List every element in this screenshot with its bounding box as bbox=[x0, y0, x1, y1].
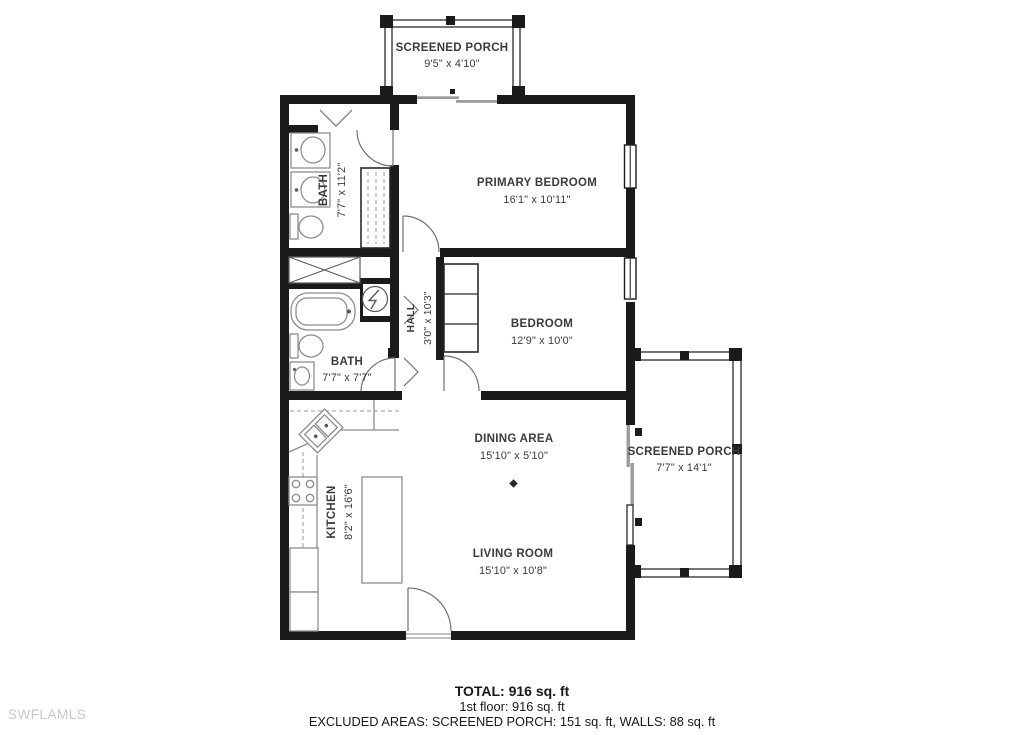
refrigerator-icon bbox=[290, 548, 318, 592]
kitchen-sink-icon bbox=[299, 409, 343, 453]
hall: HALL 3'0" x 10'3" bbox=[404, 291, 434, 386]
water-heater-icon bbox=[363, 287, 388, 312]
porch-post bbox=[628, 565, 641, 578]
room-label: HALL bbox=[406, 303, 417, 332]
floor-plan-image: SCREENED PORCH 9'5" x 4'10" bbox=[0, 0, 1024, 735]
room-dims: 16'1" x 10'11" bbox=[503, 194, 570, 206]
toilet-icon bbox=[290, 214, 298, 239]
patio-slider bbox=[631, 463, 635, 505]
room-dims: 15'10" x 5'10" bbox=[480, 450, 548, 462]
room-dims: 8'2" x 16'6" bbox=[343, 484, 355, 540]
room-label: BATH bbox=[318, 174, 330, 206]
room-dims: 7'7" x 14'1" bbox=[656, 462, 712, 474]
shower bbox=[289, 257, 360, 283]
room-dims: 12'9" x 10'0" bbox=[511, 335, 573, 347]
first-floor-area: 1st floor: 916 sq. ft bbox=[0, 699, 1024, 714]
room-label: BEDROOM bbox=[511, 318, 573, 330]
kitchen-island bbox=[362, 477, 402, 583]
porch-post bbox=[680, 568, 689, 577]
dimension-marker bbox=[450, 89, 455, 94]
area-summary: TOTAL: 916 sq. ft 1st floor: 916 sq. ft … bbox=[0, 683, 1024, 729]
porch-post bbox=[680, 351, 689, 360]
porch-post bbox=[729, 565, 742, 578]
room-dims: 3'0" x 10'3" bbox=[423, 291, 434, 345]
doorway-chevron bbox=[320, 110, 352, 126]
room-label: SCREENED PORCH bbox=[396, 42, 509, 54]
excluded-areas: EXCLUDED AREAS: SCREENED PORCH: 151 sq. … bbox=[0, 714, 1024, 729]
porch-screen-wall bbox=[733, 352, 741, 577]
door-arc bbox=[403, 216, 439, 252]
door-arc bbox=[357, 130, 393, 166]
room-label: SCREENED PORCH bbox=[628, 446, 741, 458]
porch-post bbox=[635, 518, 642, 526]
hall-closet bbox=[361, 168, 390, 248]
living-room: LIVING ROOM 15'10" x 10'8" bbox=[406, 548, 553, 638]
dining-area: DINING AREA 15'10" x 5'10" bbox=[475, 433, 554, 488]
room-label: LIVING ROOM bbox=[473, 548, 554, 560]
room-dims: 15'10" x 10'8" bbox=[479, 565, 547, 577]
porch-post bbox=[512, 15, 525, 28]
total-area: TOTAL: 916 sq. ft bbox=[0, 683, 1024, 699]
kitchen: KITCHEN 8'2" x 16'6" bbox=[289, 400, 402, 631]
toilet-icon bbox=[290, 334, 298, 358]
porch-post bbox=[729, 348, 742, 361]
room-dims: 9'5" x 4'10" bbox=[424, 58, 480, 70]
room-dims: 7'7" x 7'7" bbox=[322, 372, 371, 384]
room-label: PRIMARY BEDROOM bbox=[477, 177, 597, 189]
cabinet-icon bbox=[290, 592, 318, 631]
room-label: BATH bbox=[331, 356, 363, 368]
sink-icon bbox=[290, 362, 314, 390]
porch-post bbox=[380, 15, 393, 28]
door-arc bbox=[444, 356, 479, 391]
doorway-chevron bbox=[404, 358, 418, 386]
porch-post bbox=[635, 428, 642, 436]
porch-screen-wall bbox=[385, 20, 392, 95]
front-door-arc bbox=[408, 588, 451, 631]
mls-watermark: SWFLAMLS bbox=[8, 707, 86, 722]
water-heater bbox=[363, 287, 388, 312]
room-label: DINING AREA bbox=[475, 433, 554, 445]
porch-post bbox=[446, 16, 455, 25]
right-screened-porch: SCREENED PORCH 7'7" x 14'1" bbox=[627, 348, 743, 578]
porch-sliding-door bbox=[417, 89, 497, 103]
dimension-marker bbox=[509, 479, 517, 487]
room-dims: 7'7" x 11'2" bbox=[336, 163, 348, 218]
bedroom-closet bbox=[444, 264, 478, 352]
window bbox=[627, 505, 633, 545]
porch-post bbox=[628, 348, 641, 361]
primary-bedroom: PRIMARY BEDROOM 16'1" x 10'11" bbox=[403, 177, 597, 252]
room-label: KITCHEN bbox=[326, 485, 338, 538]
porch-screen-wall bbox=[513, 20, 520, 95]
